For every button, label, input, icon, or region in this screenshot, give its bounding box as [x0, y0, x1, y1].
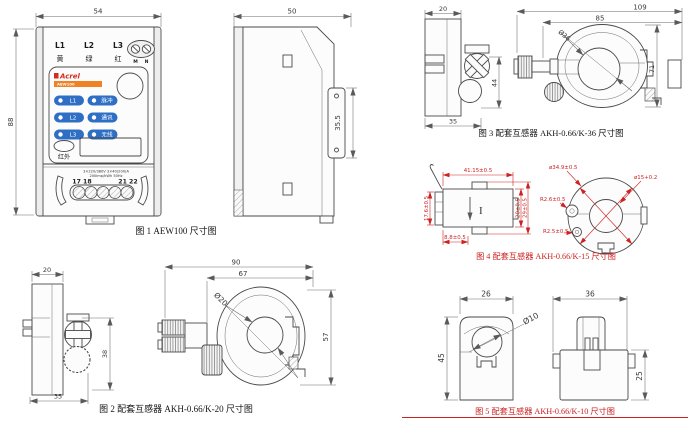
dim-label: 25	[635, 371, 644, 381]
terminal-numbers-right: 21 22	[118, 179, 137, 186]
dim-label-height: 57	[322, 333, 330, 342]
dim-label-depth: 50	[288, 8, 297, 16]
knurled-knob-icon	[202, 345, 222, 375]
side-body	[234, 27, 334, 223]
phase-l3: L3	[113, 41, 123, 50]
terminal-numbers-left: 17 18	[72, 179, 91, 186]
terminal-screw-icon	[73, 187, 85, 199]
dim-label-side: 17.6±0.5	[424, 196, 430, 221]
dim-label: 35	[54, 393, 62, 401]
dim-label-bottom: 8.8±0.5	[444, 235, 466, 241]
phase-color-red: 红	[115, 54, 122, 63]
dim-label-inner: 67	[239, 270, 248, 278]
dim-label-top: 41.15±0.5	[464, 168, 493, 174]
foot	[320, 216, 333, 223]
fig2-caption: 图 2 配套互感器 AKH-0.66/K-20 尺寸图	[99, 403, 253, 414]
left-rail	[37, 28, 43, 216]
brand-flag-icon	[54, 73, 59, 79]
led-label-l2: L2	[70, 116, 77, 122]
led-dot-icon	[58, 115, 62, 119]
phase-l1: L1	[55, 41, 65, 50]
neutral-label-m: M	[133, 59, 138, 65]
brand-logo: Acrel	[59, 73, 81, 81]
hatch-area	[234, 190, 243, 216]
technical-drawing-sheet: 54 88 L1 L2 L3 黄 绿 红 M N Acrel AEW100	[0, 0, 688, 433]
dim-label-inner-h: 20±0.5	[516, 198, 522, 218]
side-tab	[553, 354, 560, 368]
knurled-knob-icon	[545, 83, 564, 102]
led-dot-icon	[58, 98, 62, 102]
led-label-pulse: 脉冲	[101, 97, 113, 105]
led-dot-icon	[92, 115, 96, 119]
dim-label-outer: 109	[633, 4, 646, 12]
terminal-screw-icon	[85, 187, 97, 199]
dim-label: 44	[491, 79, 499, 87]
knurled-knob-icon	[518, 56, 532, 78]
terminal-screw-icon	[109, 187, 121, 199]
dim-label-inner: 85	[596, 15, 605, 23]
led-label-l1: L1	[70, 99, 77, 105]
dim-label-height: 71	[648, 65, 656, 73]
dim-label: 35	[449, 118, 457, 126]
dim-label: 36	[585, 290, 595, 299]
dim-label-rail: 35.5	[334, 115, 342, 131]
dim-label-outer: 90	[232, 259, 241, 267]
dim-label-hole-dia: ø15+0.2	[634, 175, 657, 181]
knurled-knob-icon	[162, 320, 185, 335]
led-dot-icon	[92, 132, 96, 136]
din-tab	[86, 216, 114, 224]
phase-color-green: 绿	[86, 54, 93, 63]
bracket-hatch	[645, 88, 655, 101]
model-label: AEW100	[57, 82, 75, 87]
dim-label-width: 54	[94, 8, 103, 16]
dim-label: 45	[437, 353, 446, 363]
dim-label-outer-h: 29±0.5	[523, 198, 529, 218]
spec-line-1: 3×220/380V 3×40(200)A	[83, 170, 129, 174]
bracket-hatch	[289, 357, 298, 369]
phase-color-yellow: 黄	[57, 54, 64, 63]
knurled-nut-icon	[459, 80, 482, 103]
neutral-label-n: N	[145, 59, 149, 65]
infrared-label: 红外	[58, 153, 70, 161]
lug	[573, 228, 582, 237]
right-rail	[154, 28, 160, 216]
dim-label: 38	[101, 350, 109, 358]
led-label-comm: 通讯	[101, 114, 113, 122]
side-tab	[641, 207, 647, 224]
knurled-knob-icon	[162, 337, 185, 352]
dim-label-radius1: R2.6±0.5	[540, 197, 565, 203]
terminal-screw-icon	[97, 187, 109, 199]
led-dot-icon	[92, 98, 96, 102]
dim-label: 26	[481, 290, 491, 299]
dim-label-outer-dia: ø34.9±0.5	[549, 165, 577, 171]
dim-label: 20	[439, 5, 447, 13]
fig3-caption: 图 3 配套互感器 AKH-0.66/K-36 尺寸图	[478, 128, 623, 138]
phase-l2: L2	[84, 41, 94, 50]
dim-label-radius2: R2.5±0.5	[543, 229, 568, 235]
side-tab	[628, 354, 635, 368]
gear-knob-icon	[64, 347, 90, 373]
fig1-caption: 图 1 AEW100 尺寸图	[135, 225, 216, 236]
led-label-wireless: 无线	[101, 131, 113, 139]
terminal-screw-icon	[121, 187, 133, 199]
dim-label: 20	[43, 266, 51, 274]
ct-hole	[578, 48, 620, 90]
ct-hole	[247, 317, 283, 353]
led-dot-icon	[58, 132, 62, 136]
led-label-l3: L3	[70, 133, 77, 139]
fig4-caption: 图 4 配套互感器 AKH-0.66/K-15 尺寸图	[476, 251, 616, 261]
lug	[566, 205, 578, 217]
fig5-caption: 图 5 配套互感器 AKH-0.66/K-10 尺寸图	[475, 406, 615, 416]
drawing-canvas: 54 88 L1 L2 L3 黄 绿 红 M N Acrel AEW100	[0, 0, 688, 433]
dim-label-height: 88	[7, 118, 15, 127]
current-mark: I	[479, 205, 483, 217]
